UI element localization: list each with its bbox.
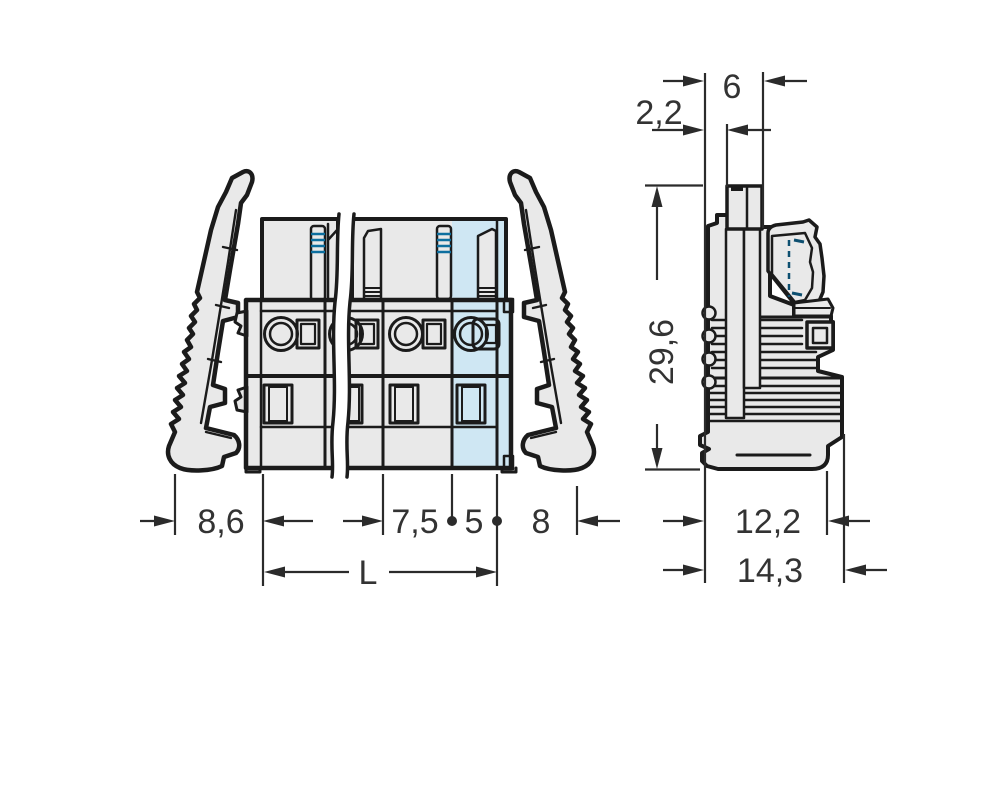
dim-label-pitch: 7,5 <box>391 503 438 541</box>
housing-body <box>235 299 516 472</box>
front-view <box>168 171 594 477</box>
dim-label-depth-total: 14,3 <box>737 552 803 590</box>
dim-label-height: 29,6 <box>643 319 681 385</box>
front-dimensions: 8,6 7,5 5 8 L <box>140 474 620 592</box>
upper-lever-blocks <box>262 219 506 300</box>
side-window <box>807 322 833 348</box>
dim-label-pole-width: 5 <box>465 503 484 541</box>
top-pin <box>727 186 762 229</box>
technical-drawing-page: 8,6 7,5 5 8 L 6 2,2 29,6 12,2 <box>0 0 1000 792</box>
connector-technical-drawing: 8,6 7,5 5 8 L 6 2,2 29,6 12,2 <box>0 0 1000 792</box>
center-channel <box>726 229 744 418</box>
side-view <box>700 186 842 469</box>
contact-strip <box>744 229 760 388</box>
dim-label-length: L <box>359 554 378 592</box>
right-locking-lever <box>510 171 594 470</box>
dim-label-left-latch: 8,6 <box>197 503 244 541</box>
grey-cap-strip <box>478 229 496 299</box>
dim-label-pin-width: 6 <box>723 68 742 106</box>
dim-label-depth-inner: 12,2 <box>735 503 801 541</box>
grey-cap-strip <box>364 229 381 299</box>
dim-label-right-latch: 8 <box>532 503 551 541</box>
dim-label-top-offset: 2,2 <box>635 94 682 132</box>
